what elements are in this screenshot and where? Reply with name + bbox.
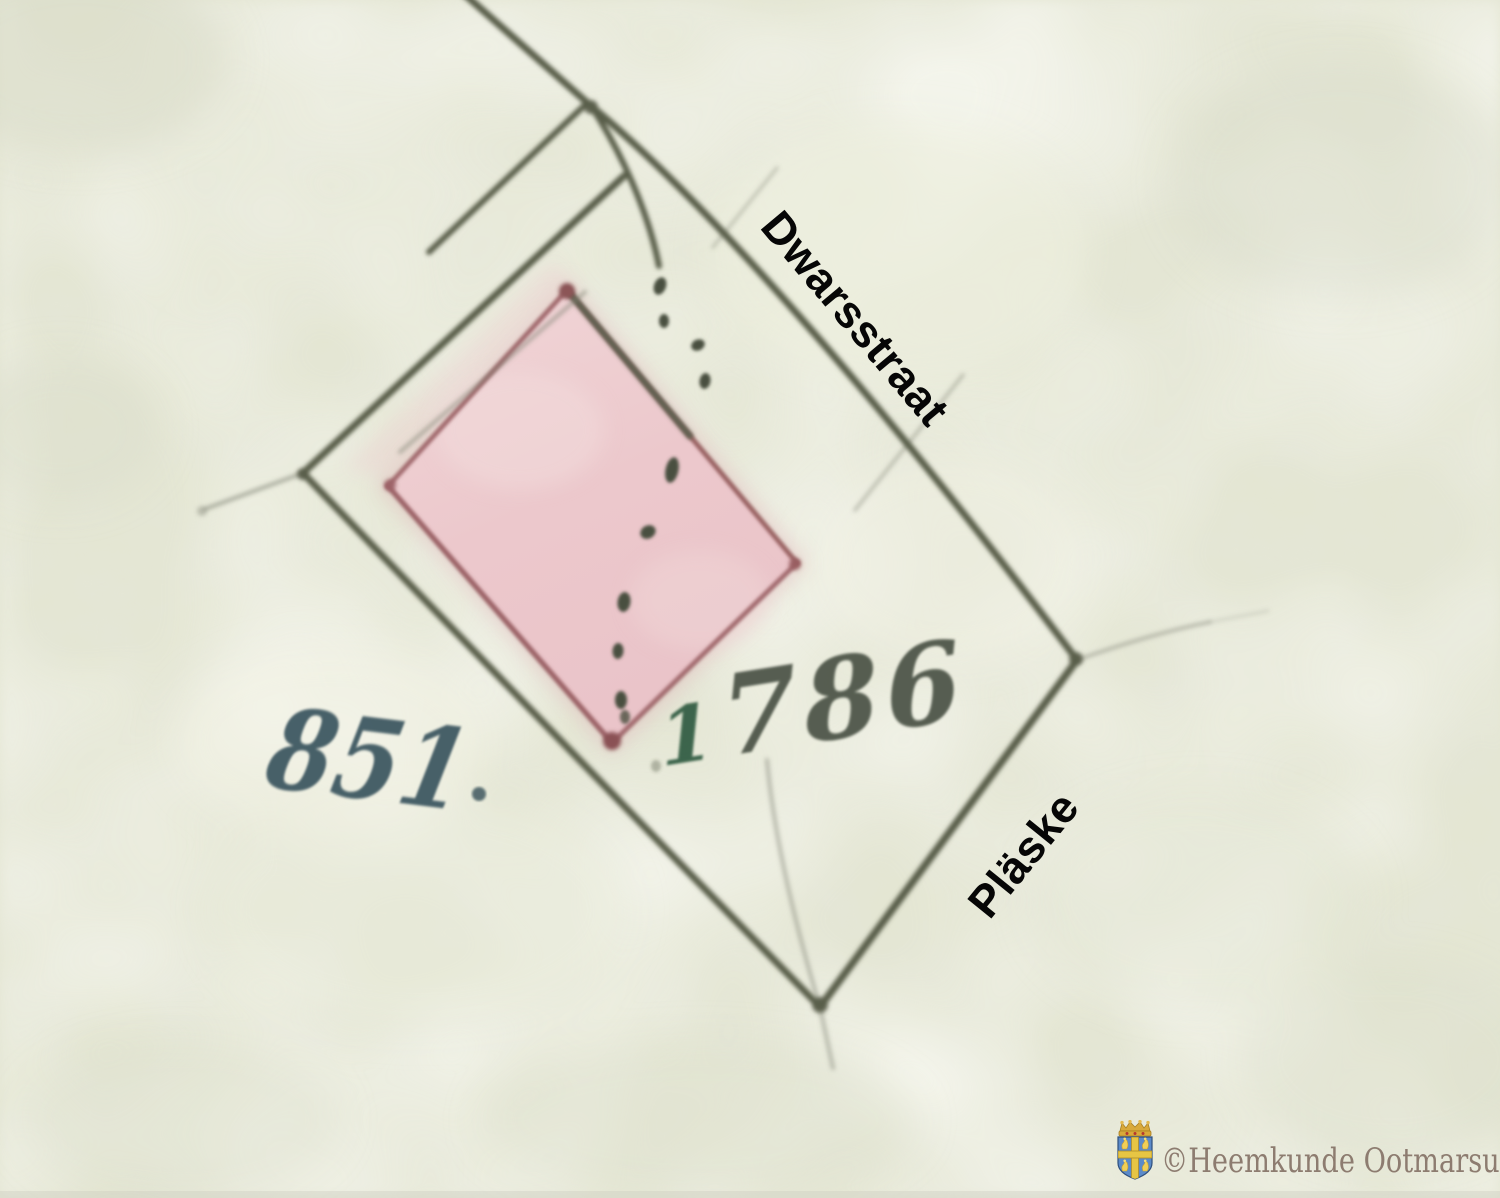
watermark: ©Heemkunde Ootmarsum bbox=[1114, 1120, 1500, 1186]
crown bbox=[1119, 1120, 1151, 1136]
map-canvas: 851 1786 Dwarsstraat Pläske bbox=[0, 0, 1500, 1198]
cadastral-map-drawing: 851 1786 bbox=[0, 0, 1500, 1198]
ootmarsum-coat-of-arms-icon bbox=[1114, 1120, 1156, 1184]
parcel-number-851: 851 bbox=[255, 682, 481, 836]
parcel-number-851-dot bbox=[472, 787, 486, 801]
scan-edge-strip bbox=[0, 1191, 1500, 1198]
watermark-text: ©Heemkunde Ootmarsum bbox=[1161, 1144, 1500, 1178]
